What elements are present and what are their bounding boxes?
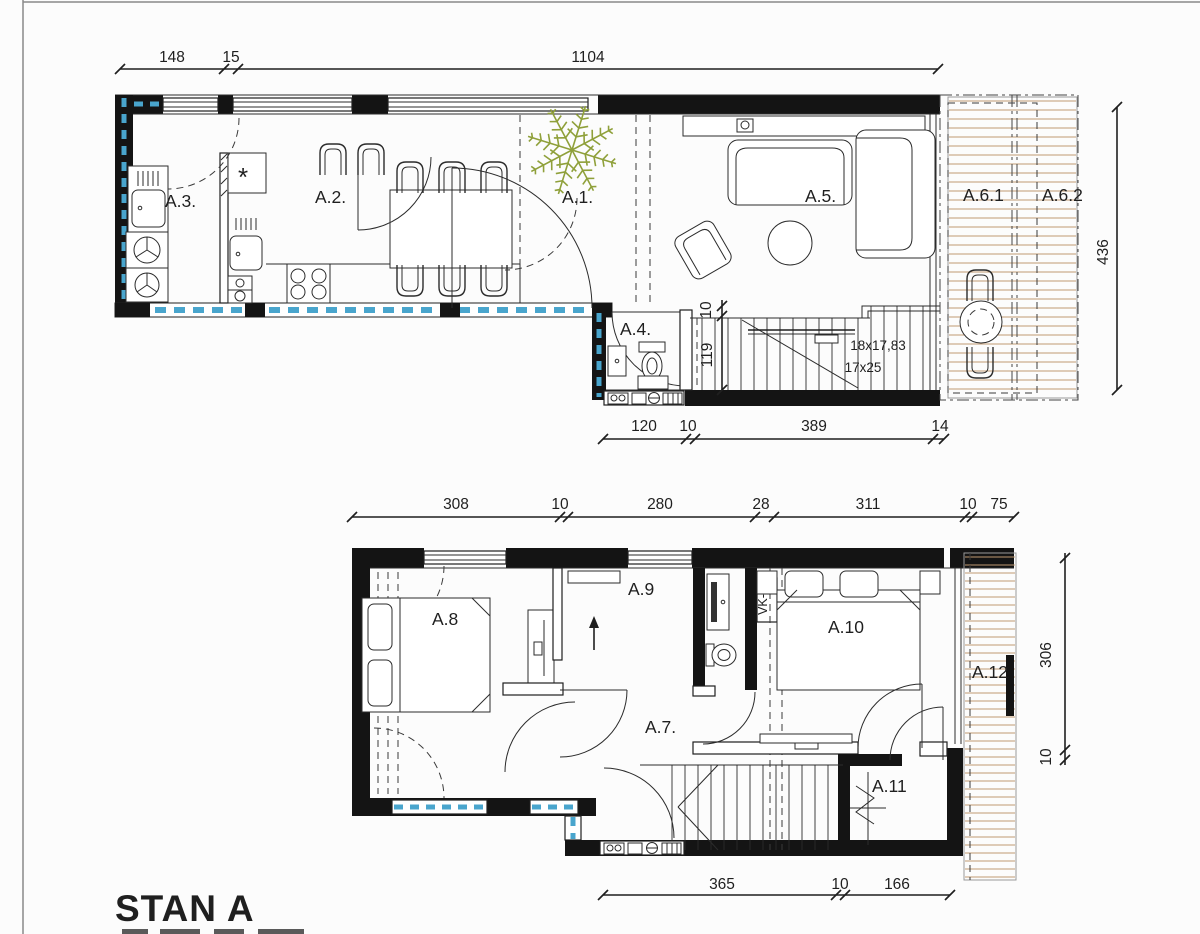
dim-1104: 1104	[571, 49, 605, 66]
sink-icon	[132, 190, 165, 227]
terrace-lower	[964, 553, 1016, 880]
washbasin-icon	[638, 376, 668, 389]
dim-10e: 10	[1038, 748, 1055, 766]
stairs-upper: 18x17,83 17x25	[690, 306, 940, 390]
lower-interior-walls	[693, 734, 947, 850]
utility-room-fixtures	[126, 166, 168, 302]
console-table-icon	[760, 734, 852, 743]
upper-floor-plan: 148 15 1104 120 10 389 14 436 10 119	[115, 49, 1117, 439]
terrace-upper	[940, 95, 1078, 400]
floorplan-page: 148 15 1104 120 10 389 14 436 10 119	[0, 0, 1200, 934]
coffee-table-icon	[768, 221, 812, 265]
closet-a9	[503, 568, 620, 695]
room-label-a11: A.11	[872, 776, 907, 796]
floorplan-canvas: 148 15 1104 120 10 389 14 436 10 119	[0, 0, 1200, 934]
dim-75: 75	[990, 496, 1007, 513]
chair-icon	[397, 265, 423, 296]
dim-308: 308	[443, 496, 469, 513]
room-label-a8: A.8	[432, 609, 458, 629]
dining-table	[390, 190, 512, 268]
room-label-a1: A.1.	[562, 187, 593, 207]
pillow-icon	[368, 604, 392, 650]
dim-436: 436	[1095, 239, 1112, 265]
bedroom-a8-furniture	[362, 566, 554, 798]
room-label-a7: A.7.	[645, 717, 676, 737]
dim-10b: 10	[551, 496, 569, 513]
double-bed-icon	[777, 590, 920, 690]
dim-166: 166	[884, 876, 910, 893]
desk-icon	[528, 610, 554, 686]
dim-365: 365	[709, 876, 735, 893]
meter-symbols-strip	[604, 391, 684, 405]
nightstand-icon	[920, 571, 940, 594]
lower-floor-plan: 308 10 280 28 311 10 75 365 10 166 306 1…	[352, 496, 1065, 895]
room-label-a2: A.2.	[315, 187, 346, 207]
room-label-a9: A.9	[628, 579, 654, 599]
living-room-furniture	[636, 115, 935, 305]
chair-icon	[397, 162, 423, 193]
dim-15: 15	[222, 49, 239, 66]
dim-148: 148	[159, 49, 185, 66]
dim-311: 311	[856, 496, 881, 513]
dim-10c: 10	[959, 496, 977, 513]
room-label-a4: A.4.	[620, 319, 651, 339]
toilet-icon	[639, 342, 665, 352]
meter-symbols-strip-lower	[600, 841, 684, 855]
page-border	[23, 0, 1200, 934]
dim-14: 14	[931, 418, 949, 435]
dim-120: 120	[631, 418, 657, 435]
room-label-a61: A.6.1	[963, 185, 1004, 205]
pillow-icon	[840, 571, 878, 597]
sofa-icon	[856, 130, 935, 258]
dim-389: 389	[801, 418, 827, 435]
terrace-chair-icon	[967, 270, 993, 301]
kitchen-sink-icon	[230, 236, 262, 270]
armchair-icon	[672, 218, 734, 282]
shelf-icon	[568, 571, 620, 583]
dim-28: 28	[752, 496, 769, 513]
terrace-table-icon	[960, 301, 1002, 343]
plant-icon	[528, 106, 616, 194]
room-label-a10: A.10	[828, 617, 864, 637]
pillow-icon	[368, 660, 392, 706]
room-label-a3: A.3.	[165, 191, 196, 211]
vanity-icon	[707, 574, 729, 630]
dim-10a: 10	[679, 418, 697, 435]
stair-note-1: 18x17,83	[850, 338, 906, 353]
cutoff-text-fragment	[122, 929, 304, 934]
dim-306: 306	[1038, 642, 1055, 668]
room-label-a5: A.5.	[805, 186, 836, 206]
stairs-lower	[640, 765, 843, 850]
room-label-a12: A.12	[972, 662, 1008, 682]
stair-note-2: 17x25	[845, 360, 882, 375]
dim-280: 280	[647, 496, 673, 513]
shower-sink-icon	[608, 346, 626, 376]
room-label-a62: A.6.2	[1042, 185, 1083, 205]
nightstand-icon	[757, 571, 777, 594]
dim-stair-10: 10	[698, 301, 715, 319]
chair-icon	[358, 144, 384, 175]
dining-set	[320, 144, 512, 296]
bathroom-lower: VK-5	[693, 568, 782, 850]
boiler-symbol: *	[238, 162, 248, 192]
plan-title: STAN A	[115, 888, 255, 929]
chair-icon	[481, 265, 507, 296]
chair-icon	[320, 144, 346, 175]
pillow-icon	[785, 571, 823, 597]
